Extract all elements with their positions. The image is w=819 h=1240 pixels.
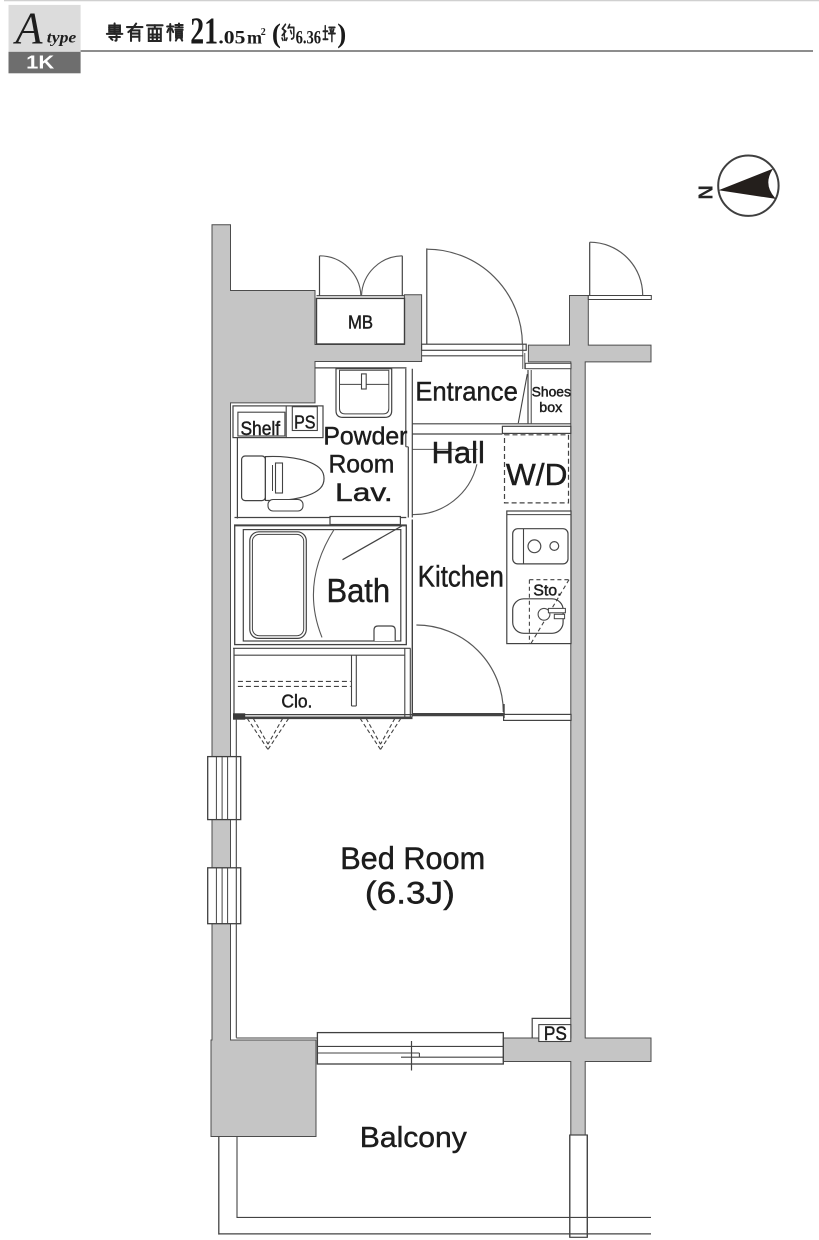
svg-text:PS: PS <box>544 1024 567 1045</box>
svg-text:MB: MB <box>348 311 373 332</box>
svg-text:.05: .05 <box>218 28 245 49</box>
svg-text:(: ( <box>272 19 281 49</box>
svg-text:Balcony: Balcony <box>360 1122 468 1154</box>
svg-text:Sto.: Sto. <box>533 582 561 599</box>
svg-text:Hall: Hall <box>432 436 485 470</box>
svg-text:21: 21 <box>190 11 218 53</box>
svg-text:6.36: 6.36 <box>296 28 322 49</box>
svg-text:Clo.: Clo. <box>281 692 312 712</box>
svg-text:Lav.: Lav. <box>335 479 393 507</box>
svg-text:Bath: Bath <box>326 572 390 609</box>
svg-text:Shelf: Shelf <box>240 419 280 440</box>
svg-text:m: m <box>247 28 262 48</box>
svg-text:Room: Room <box>328 451 394 479</box>
svg-text:): ) <box>337 19 346 49</box>
svg-text:Shoes: Shoes <box>532 384 571 400</box>
svg-text:W/D: W/D <box>506 458 568 492</box>
svg-text:2: 2 <box>261 27 266 38</box>
svg-text:Powder: Powder <box>323 422 407 450</box>
svg-text:A: A <box>13 3 44 54</box>
svg-text:N: N <box>696 185 718 199</box>
svg-text:(6.3J): (6.3J) <box>365 875 455 911</box>
svg-text:Kitchen: Kitchen <box>418 561 504 594</box>
svg-text:box: box <box>539 399 562 415</box>
svg-text:1K: 1K <box>26 53 54 73</box>
svg-text:Entrance: Entrance <box>415 377 518 407</box>
svg-text:PS: PS <box>294 413 315 433</box>
svg-text:type: type <box>47 30 77 47</box>
svg-text:Bed Room: Bed Room <box>340 840 485 876</box>
